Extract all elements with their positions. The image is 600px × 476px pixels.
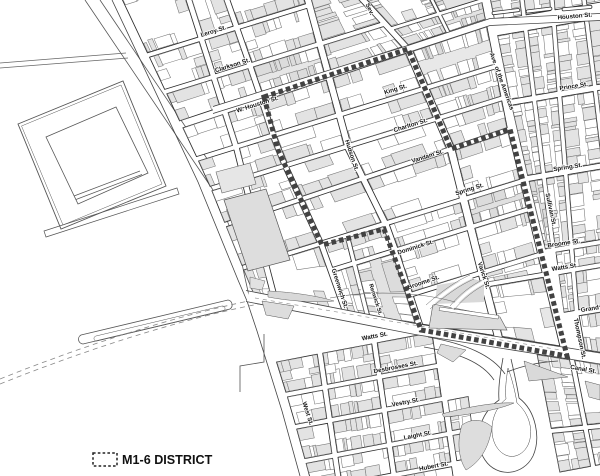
svg-text:M1-6 DISTRICT: M1-6 DISTRICT <box>122 453 213 467</box>
